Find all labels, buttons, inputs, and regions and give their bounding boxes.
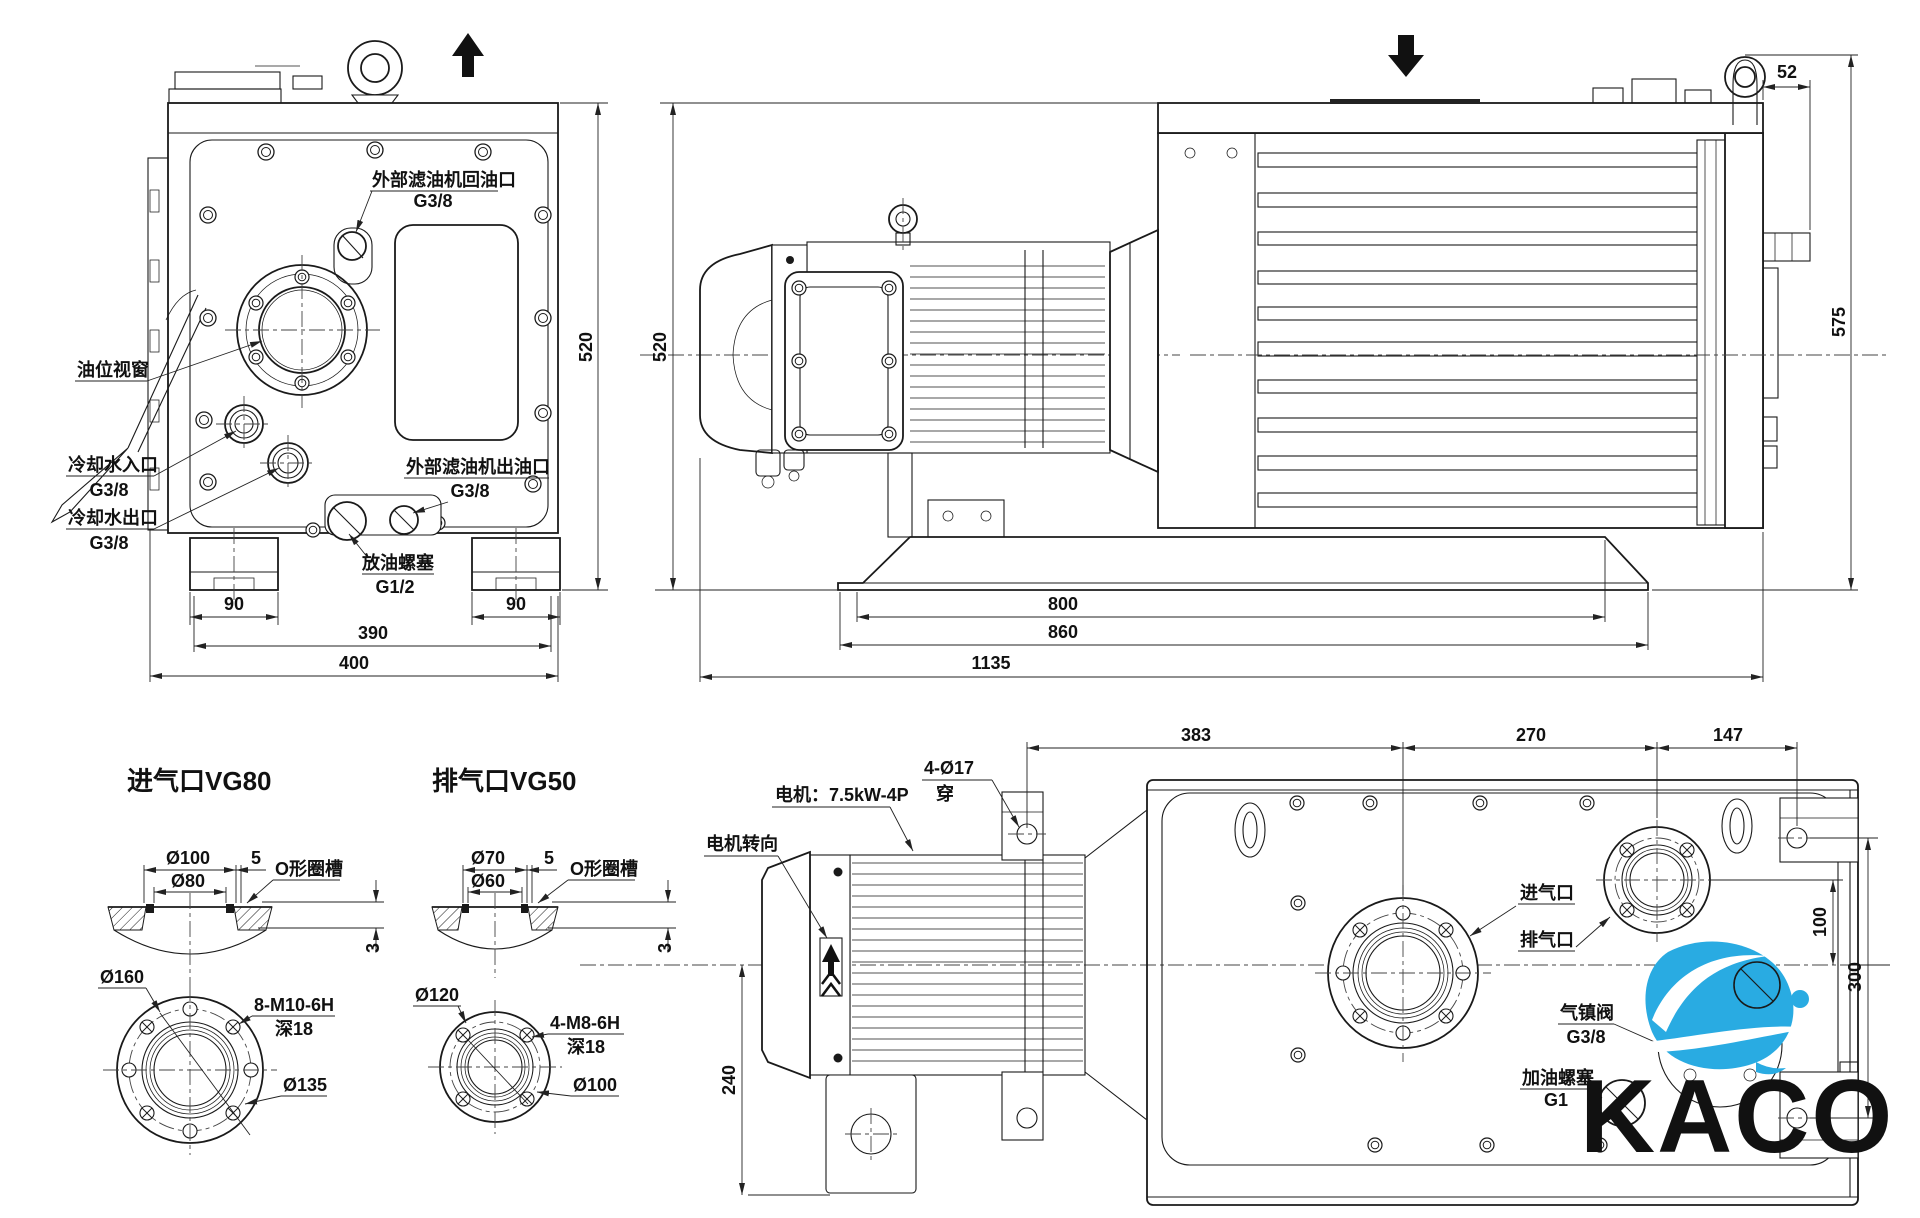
dim-inlet-bolt-circle: Ø135: [283, 1075, 327, 1095]
dim-inlet-flange: Ø160: [100, 967, 144, 987]
inlet-flange-face: [103, 985, 277, 1155]
motor-eyebolt: [889, 198, 917, 252]
outlet-section: [432, 893, 558, 978]
dim-outlet-flange: Ø120: [415, 985, 459, 1005]
label-exhaust-port: 排气口: [1520, 929, 1574, 950]
label-filter-return-size: G3/8: [413, 191, 452, 211]
label-mount-holes-thru: 穿: [936, 783, 954, 804]
dim-outlet-depth: 深18: [567, 1036, 605, 1057]
dim-foot-right: 90: [506, 594, 526, 614]
junction-box: [826, 1075, 916, 1193]
label-motor-dir: 电机转向: [706, 833, 778, 854]
label-inlet-oring: O形圈槽: [275, 858, 343, 879]
dim-outlet-groove: 3: [655, 943, 675, 953]
dim-inlet-bore-inner: Ø80: [171, 871, 205, 891]
dim-outlet-thread: 4-M8-6H: [550, 1013, 620, 1033]
inlet-flange-top: [1315, 885, 1491, 1062]
label-outlet-oring: O形圈槽: [570, 858, 638, 879]
eyebolt-oval-right: [1722, 799, 1752, 853]
label-cool-in-size: G3/8: [89, 480, 128, 500]
label-cool-out: 冷却水出口: [68, 507, 158, 528]
dim-outlet-bore-outer: Ø70: [471, 848, 505, 868]
front-view: 外部滤油机回油口 G3/8 油位视窗 冷却水入口 G3/8 冷却水出口 G3/8…: [52, 33, 608, 682]
lifting-handle: [169, 66, 322, 103]
filter-return-port: [334, 228, 372, 284]
dim-offset-top: 52: [1777, 62, 1797, 82]
label-cool-in: 冷却水入口: [68, 454, 158, 475]
label-motor: 电机：7.5kW-4P: [775, 784, 909, 805]
pump-support-foot: [928, 500, 1004, 537]
top-plate-side: [1158, 103, 1763, 133]
pump-eyebolt-top: [1725, 57, 1765, 97]
label-drain-size: G1/2: [375, 577, 414, 597]
dim-width-inner: 390: [358, 623, 388, 643]
motor-support: [888, 453, 912, 537]
outlet-detail: 排气口VG50 Ø70 5 Ø60 O形圈槽 3 Ø120 4-M8-6H 深1: [413, 766, 676, 1134]
label-drain: 放油螺塞: [361, 552, 435, 573]
dim-width-total: 400: [339, 653, 369, 673]
oil-level-lever: [52, 290, 206, 522]
dim-side-height: 520: [650, 332, 670, 362]
dim-height-total: 575: [1829, 307, 1849, 337]
dim-300: 300: [1845, 962, 1865, 992]
eyebolt-front: [348, 41, 402, 103]
drawing-canvas: 外部滤油机回油口 G3/8 油位视窗 冷却水入口 G3/8 冷却水出口 G3/8…: [0, 0, 1920, 1218]
dim-outlet-land: 5: [544, 848, 554, 868]
label-fill-plug-size: G1: [1544, 1090, 1568, 1110]
side-fitting-nipple: [1763, 233, 1810, 261]
label-ballast-size: G3/8: [1566, 1027, 1605, 1047]
dim-base-bottom: 860: [1048, 622, 1078, 642]
outlet-flange-face: [428, 1000, 562, 1134]
dim-inlet-bore-outer: Ø100: [166, 848, 210, 868]
dim-outlet-bore-inner: Ø60: [471, 871, 505, 891]
dim-foot-left: 90: [224, 594, 244, 614]
dim-270: 270: [1516, 725, 1546, 745]
drain-boss: [325, 495, 441, 540]
dim-base-top: 800: [1048, 594, 1078, 614]
dim-inlet-groove: 3: [363, 943, 383, 953]
cooling-water-outlet-port: [260, 435, 316, 491]
kaco-logo-mark: [1645, 941, 1810, 1074]
down-arrow-icon: [1388, 35, 1424, 77]
label-inlet-port: 进气口: [1520, 882, 1574, 903]
dim-147: 147: [1713, 725, 1743, 745]
label-filter-out-size: G3/8: [450, 481, 489, 501]
up-arrow-icon: [452, 33, 484, 77]
dim-100: 100: [1810, 907, 1830, 937]
dim-inlet-depth: 深18: [275, 1018, 313, 1039]
coupling-housing: [1110, 230, 1158, 472]
dim-inlet-land: 5: [251, 848, 261, 868]
eyebolt-oval-left: [1235, 803, 1265, 857]
dim-240: 240: [719, 1065, 739, 1095]
exhaust-flange-top: [1596, 820, 1718, 942]
base-side: [838, 537, 1648, 590]
dim-inlet-thread: 8-M10-6H: [254, 995, 334, 1015]
motor-top: [762, 810, 1147, 1193]
kaco-logo-text: KACO: [1580, 1059, 1894, 1175]
label-filter-return: 外部滤油机回油口: [372, 169, 516, 190]
dim-front-height: 520: [576, 332, 596, 362]
side-view: 520 52 575 800 860 1135: [640, 35, 1890, 682]
label-ballast: 气镇阀: [1559, 1002, 1614, 1023]
motor-side: [700, 198, 1110, 488]
label-filter-out: 外部滤油机出油口: [406, 456, 550, 477]
label-cool-out-size: G3/8: [89, 533, 128, 553]
pump-body-side: [1158, 57, 1890, 528]
dim-length-total: 1135: [971, 653, 1010, 673]
dim-383: 383: [1181, 725, 1211, 745]
outlet-detail-title: 排气口VG50: [432, 766, 577, 796]
nameplate-window: [395, 225, 518, 440]
label-mount-holes: 4-Ø17: [924, 758, 974, 778]
inlet-detail-title: 进气口VG80: [127, 766, 272, 796]
dim-outlet-bolt-circle: Ø100: [573, 1075, 617, 1095]
cooling-water-inlet-port: [216, 396, 272, 452]
label-oil-window: 油位视窗: [77, 359, 149, 380]
inlet-detail: 进气口VG80 Ø100 5 Ø80 O形圈槽 3 Ø160 8-M10-: [98, 766, 384, 1155]
